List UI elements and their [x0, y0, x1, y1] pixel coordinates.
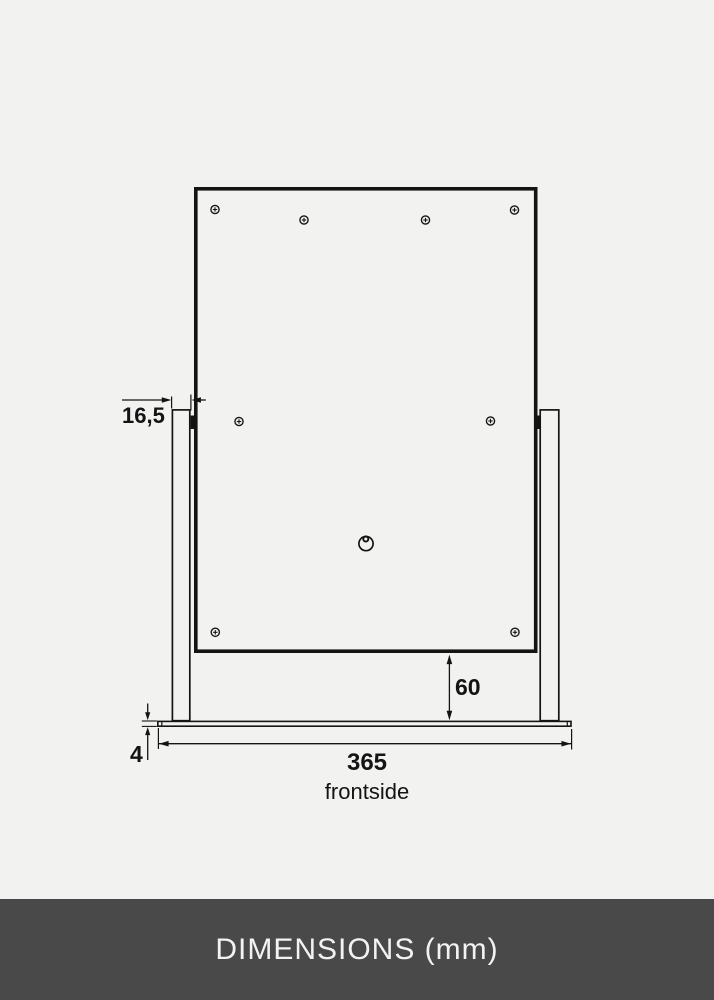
dimension-label-post-width: 16,5: [122, 404, 165, 427]
dimension-sheet: 16,5 60 4 365 frontside DIMENSIONS (mm): [0, 0, 714, 1000]
dimension-base-thickness: [142, 704, 157, 761]
footer-title: DIMENSIONS (mm): [215, 933, 498, 967]
view-caption: frontside: [287, 779, 447, 805]
dimension-panel-to-base: [447, 655, 453, 721]
left-post-connector: [191, 416, 195, 430]
right-stand-post: [540, 410, 559, 721]
back-panel: [196, 189, 536, 651]
dimension-label-base-thickness: 4: [130, 742, 143, 766]
base-plate: [158, 721, 571, 726]
left-stand-post: [172, 410, 189, 721]
dimension-label-base-width: 365: [287, 750, 447, 775]
dimension-label-panel-to-base: 60: [455, 675, 481, 699]
technical-drawing: 16,5 60 4 365 frontside: [0, 0, 714, 899]
dimension-base-width: [158, 728, 571, 750]
footer-bar: DIMENSIONS (mm): [0, 899, 714, 1000]
